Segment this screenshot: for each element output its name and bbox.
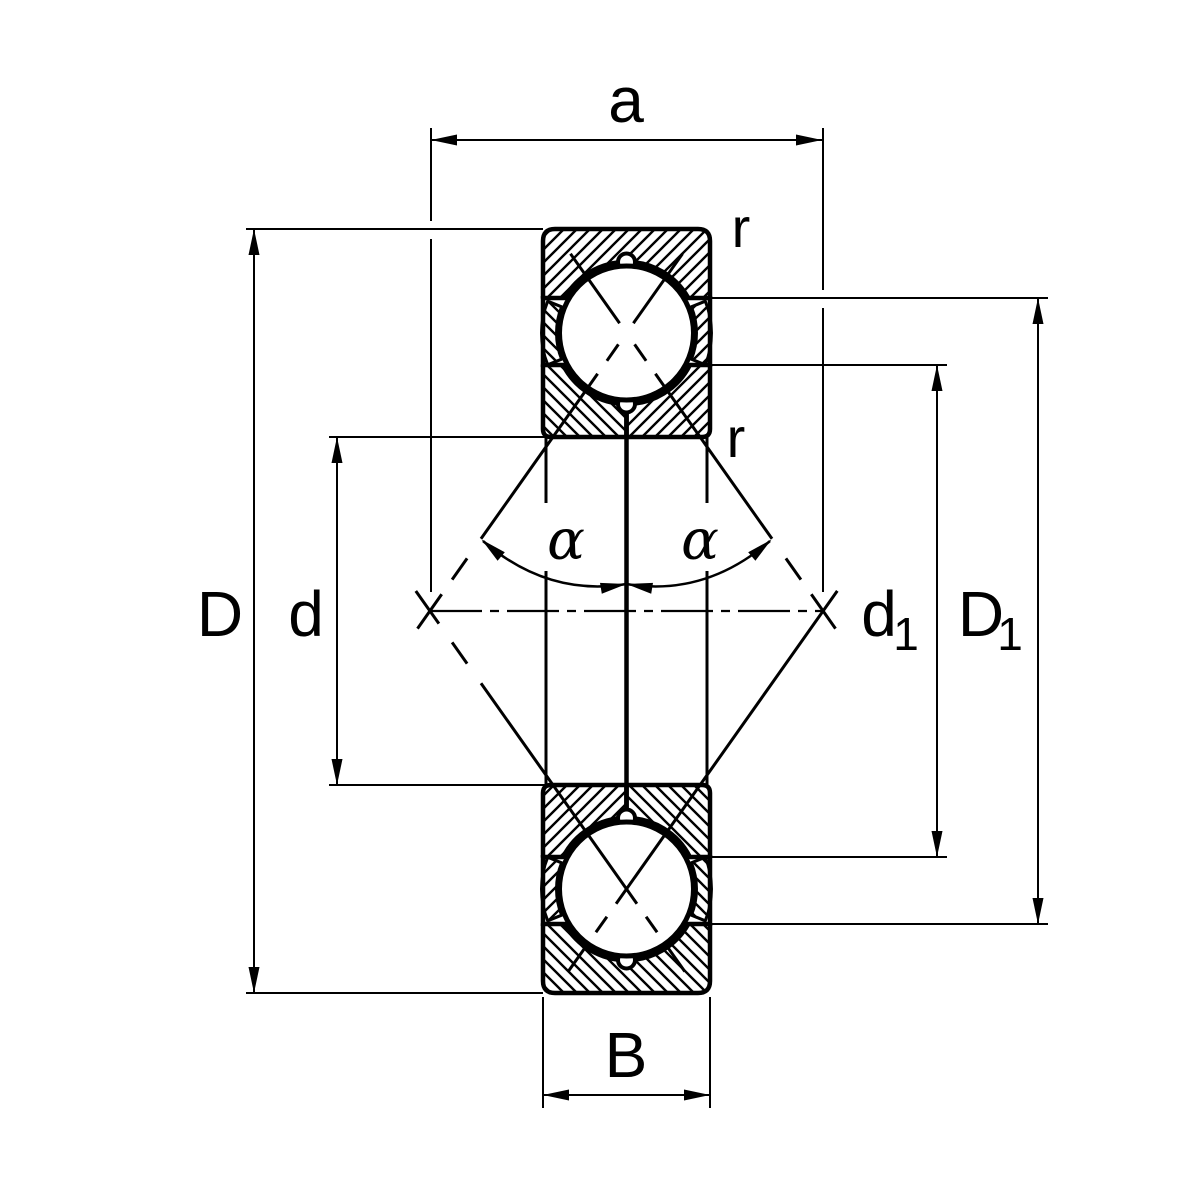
label-alpha-left: α (547, 508, 585, 573)
bearing-diagram: a r r D d d 1 D 1 B α α (0, 0, 1200, 1200)
label-r-top: r (732, 196, 751, 259)
label-alpha-right: α (681, 508, 719, 573)
label-d: d (288, 578, 324, 650)
alpha-arrowhead (748, 540, 771, 561)
ball-top (560, 266, 694, 400)
alpha-arrowhead (627, 583, 654, 594)
label-r-inner: r (727, 406, 746, 469)
label-d1-sub: 1 (893, 608, 919, 660)
alpha-arrowhead (600, 583, 627, 594)
bearing-drawing-page: a r r D d d 1 D 1 B α α (0, 0, 1200, 1200)
label-D: D (197, 578, 243, 650)
label-d1-base: d (861, 578, 897, 650)
label-a: a (608, 64, 644, 136)
alpha-arrowhead (482, 540, 505, 561)
label-D1-sub: 1 (997, 608, 1023, 660)
label-B: B (605, 1019, 648, 1091)
